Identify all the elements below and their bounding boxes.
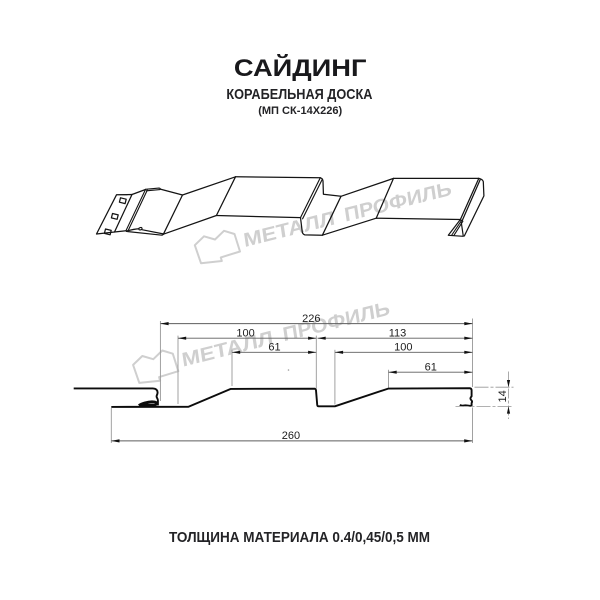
svg-text:100: 100 — [394, 342, 412, 354]
svg-text:КОРАБЕЛЬНАЯ ДОСКА: КОРАБЕЛЬНАЯ ДОСКА — [226, 87, 372, 103]
svg-text:61: 61 — [268, 342, 280, 354]
svg-text:260: 260 — [282, 430, 300, 442]
svg-text:100: 100 — [236, 328, 254, 340]
svg-text:14: 14 — [497, 390, 509, 402]
svg-text:ТОЛЩИНА МАТЕРИАЛА 0.4/0,45/0,5: ТОЛЩИНА МАТЕРИАЛА 0.4/0,45/0,5 ММ — [169, 530, 430, 546]
svg-text:САЙДИНГ: САЙДИНГ — [234, 54, 367, 82]
svg-text:61: 61 — [425, 362, 437, 374]
svg-text:113: 113 — [389, 328, 407, 340]
svg-text:226: 226 — [302, 313, 320, 325]
svg-text:(МП СК-14Х226): (МП СК-14Х226) — [258, 105, 342, 117]
